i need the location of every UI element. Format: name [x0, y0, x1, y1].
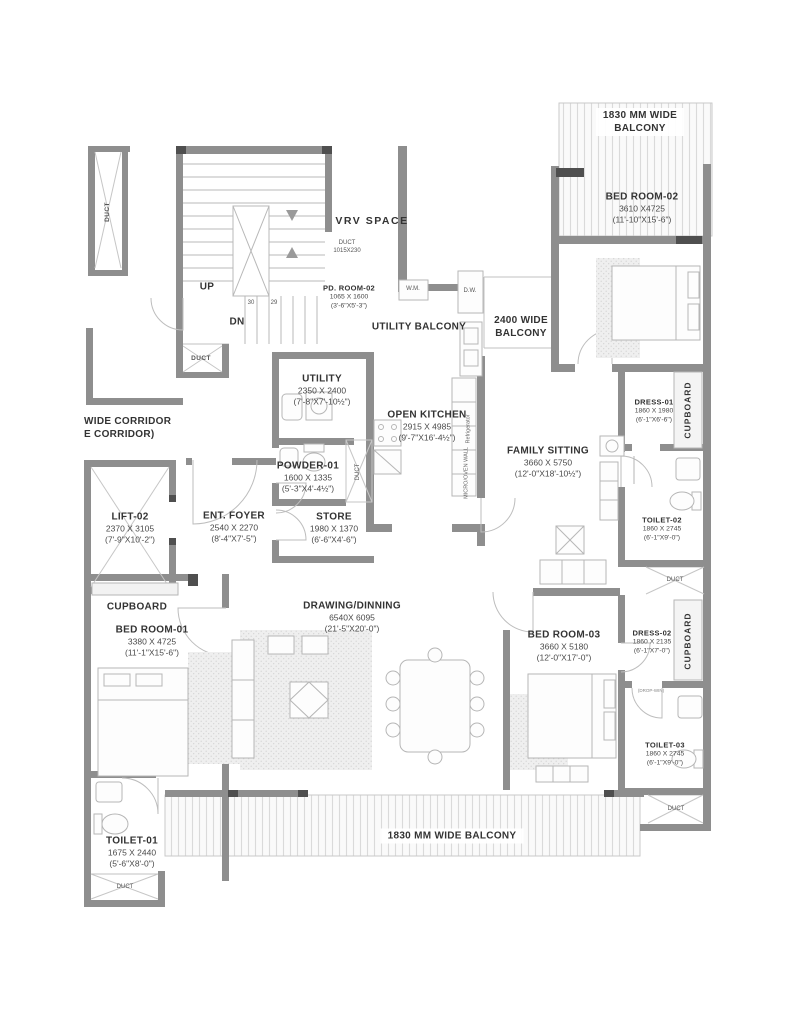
- dining-table: [400, 660, 470, 752]
- label-dn: DN: [229, 316, 244, 329]
- staircase: [183, 164, 325, 344]
- family-sofa: [540, 560, 606, 584]
- label-toilet03: TOILET-031860 X 2745(6'-1"X9'-0"): [645, 740, 685, 767]
- family-shelf: [600, 462, 618, 520]
- label-lift02: LIFT-022370 X 3105(7'-9"X10'-2"): [105, 510, 155, 545]
- label-steps-left: 30: [248, 300, 255, 308]
- label-bedroom01: BED ROOM-013380 X 4725(11'-1"X15'-6"): [116, 623, 189, 658]
- label-refrigerator: Refrigerator: [465, 414, 472, 443]
- label-duct-right: DUCT: [667, 577, 684, 585]
- balcony-bottom-area: [165, 795, 640, 856]
- label-duct-bottom-right: DUCT: [668, 806, 685, 814]
- label-drop: (DROP-WIN): [638, 688, 664, 694]
- label-up: UP: [200, 281, 215, 294]
- stair-arrows: [286, 210, 298, 258]
- toilet02-wc: [670, 492, 694, 510]
- bed-bedroom02: [612, 266, 700, 340]
- label-powder01: POWDER-011600 X 1335(5'-3"X4'-4½"): [277, 459, 339, 494]
- label-cupboard02: CUPBOARD: [682, 612, 693, 669]
- label-vrv-space: VRV SPACE: [335, 215, 408, 229]
- label-store: STORE1980 X 1370(6'-6"X4'-6"): [310, 510, 358, 545]
- toilet02-basin: [676, 458, 700, 480]
- label-duct-under-stairs: DUCT: [191, 355, 211, 363]
- label-ent-foyer: ENT. FOYER2540 X 2270(8'-4"X7'-5"): [203, 509, 265, 544]
- toilet03-basin: [678, 696, 702, 718]
- dresser-bedroom03: [536, 766, 588, 782]
- sofa-left: [232, 640, 254, 758]
- label-dress02: DRESS-021860 X 2135(6'-1"X7'-0"): [632, 628, 671, 655]
- label-cupboard-bedroom01: CUPBOARD: [107, 601, 167, 614]
- label-cupboard01: CUPBOARD: [682, 381, 693, 438]
- center-table: [290, 682, 328, 718]
- label-toilet01: TOILET-011675 X 2440(5'-6"X8'-0"): [106, 834, 158, 869]
- label-balcony-2400: 2400 WIDEBALCONY: [494, 314, 548, 340]
- label-open-kitchen: OPEN KITCHEN2915 X 4985(9'-7"X16'-4½"): [387, 408, 466, 443]
- bed-bedroom03: [528, 674, 616, 758]
- label-steps-right: 29: [271, 300, 278, 308]
- floor-plan: DUCT 1830 MM WIDEBALCONY BED ROOM-023610…: [0, 0, 800, 1024]
- label-microoven-wall: MICRO/OVEN WALL: [463, 447, 470, 499]
- label-family-sitting: FAMILY SITTING3660 X 5750(12'-0"X18'-10½…: [507, 444, 589, 479]
- ac-unit: [600, 436, 624, 456]
- label-utility: UTILITY2350 X 2400(7'-8"X7'-10½"): [294, 372, 351, 407]
- label-duct-bottom-left: DUCT: [117, 884, 134, 892]
- label-pd-room02: PD. ROOM-021065 X 1600(3'-6"X5'-3"): [323, 283, 375, 310]
- toilet01-basin: [96, 782, 122, 802]
- label-drawing-dinning: DRAWING/DINNING6540X 6095(21'-5"X20'-0"): [303, 599, 401, 634]
- label-bedroom02: BED ROOM-023610 X4725(11'-10"X15'-6"): [606, 190, 679, 225]
- label-corridor: WIDE CORRIDORE CORRIDOR): [84, 415, 171, 441]
- label-balcony-bottom: 1830 MM WIDE BALCONY: [381, 829, 524, 844]
- label-dress01: DRESS-011860 X 1980(6'-1"X6'-6"): [634, 397, 673, 424]
- label-duct-powder: DUCT: [355, 464, 363, 481]
- label-dw: D.W.: [464, 288, 477, 296]
- label-bedroom03: BED ROOM-033660 X 5180(12'-0"X17'-0"): [528, 628, 601, 663]
- label-wm: W.M.: [406, 286, 420, 294]
- label-balcony-top: 1830 MM WIDEBALCONY: [596, 108, 684, 136]
- label-toilet02: TOILET-021860 X 2745(6'-1"X9'-0"): [642, 515, 682, 542]
- label-duct-stairs: DUCT1015X230: [333, 240, 360, 256]
- label-utility-balcony: UTILITY BALCONY: [372, 321, 466, 334]
- toilet01-wc: [102, 814, 128, 834]
- cupboard-strip: [92, 583, 178, 595]
- duct-shaft-label: DUCT: [104, 202, 112, 222]
